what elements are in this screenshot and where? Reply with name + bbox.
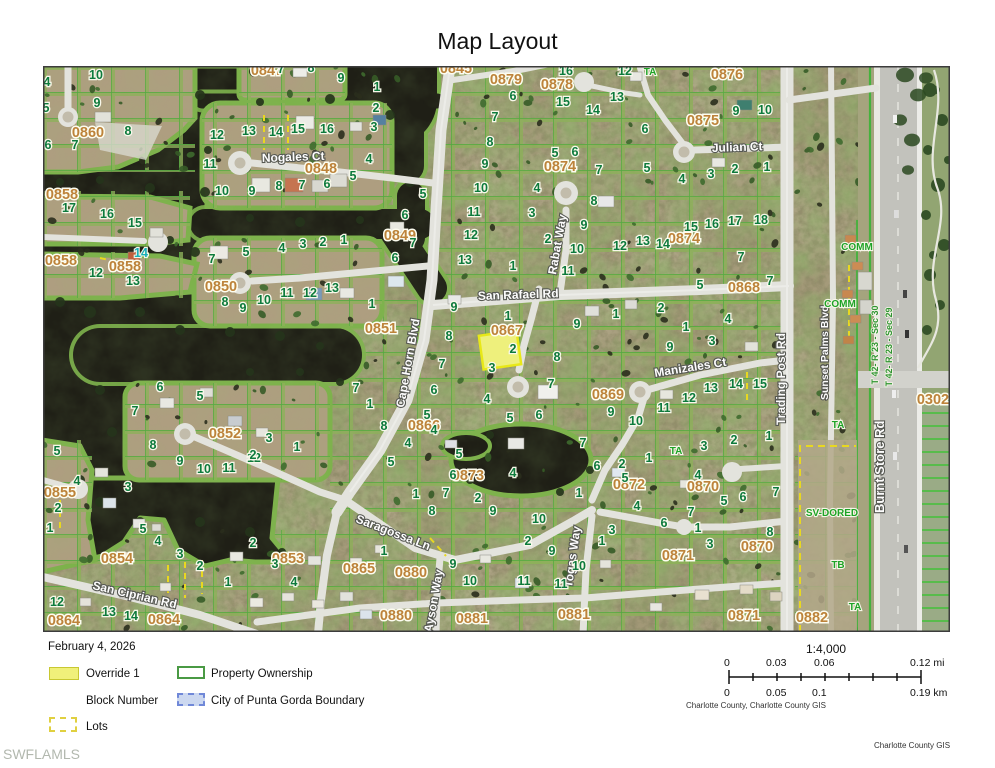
svg-text:8: 8 <box>554 350 561 364</box>
svg-text:1: 1 <box>766 429 773 443</box>
svg-text:8: 8 <box>446 329 453 343</box>
svg-text:14: 14 <box>269 125 283 139</box>
svg-text:0864: 0864 <box>148 612 180 628</box>
svg-text:3: 3 <box>707 537 714 551</box>
svg-text:5: 5 <box>420 187 427 201</box>
svg-text:14: 14 <box>124 609 138 623</box>
svg-text:2: 2 <box>525 534 532 548</box>
svg-text:6: 6 <box>572 145 579 159</box>
svg-text:0875: 0875 <box>687 113 719 129</box>
svg-text:1: 1 <box>764 160 771 174</box>
svg-text:7: 7 <box>299 178 306 192</box>
svg-text:6: 6 <box>642 122 649 136</box>
svg-text:12: 12 <box>50 595 64 609</box>
svg-text:7: 7 <box>767 274 774 288</box>
svg-text:4: 4 <box>679 172 686 186</box>
svg-text:3: 3 <box>529 206 536 220</box>
svg-text:4: 4 <box>534 181 541 195</box>
svg-text:9: 9 <box>482 157 489 171</box>
svg-text:7: 7 <box>132 404 139 418</box>
svg-text:0.05: 0.05 <box>766 687 787 699</box>
svg-text:9: 9 <box>249 184 256 198</box>
svg-text:2: 2 <box>732 162 739 176</box>
svg-text:6: 6 <box>431 383 438 397</box>
svg-text:2: 2 <box>475 491 482 505</box>
svg-text:15: 15 <box>556 95 570 109</box>
svg-text:8: 8 <box>487 135 494 149</box>
svg-text:15: 15 <box>753 377 767 391</box>
svg-text:14: 14 <box>656 237 670 251</box>
svg-text:4: 4 <box>695 468 702 482</box>
svg-text:9: 9 <box>667 340 674 354</box>
svg-text:0848: 0848 <box>305 161 337 177</box>
svg-text:SV-DORED: SV-DORED <box>806 508 858 519</box>
svg-text:4: 4 <box>155 534 162 548</box>
svg-text:0871: 0871 <box>662 548 694 564</box>
svg-text:8: 8 <box>276 179 283 193</box>
svg-text:0845: 0845 <box>440 66 472 77</box>
svg-text:0880: 0880 <box>380 608 412 624</box>
svg-text:0873: 0873 <box>452 468 484 484</box>
svg-text:14: 14 <box>729 377 743 391</box>
svg-text:9: 9 <box>608 405 615 419</box>
svg-text:Sunset Palms Blvd: Sunset Palms Blvd <box>819 305 831 400</box>
svg-text:Julian Ct: Julian Ct <box>712 139 763 155</box>
svg-text:11: 11 <box>554 577 567 591</box>
svg-text:4: 4 <box>405 436 412 450</box>
svg-text:6: 6 <box>402 208 409 222</box>
svg-text:1: 1 <box>646 451 653 465</box>
svg-text:0864: 0864 <box>48 613 80 629</box>
svg-text:16: 16 <box>559 66 573 78</box>
svg-text:13: 13 <box>325 281 339 295</box>
svg-text:12: 12 <box>210 128 224 142</box>
svg-text:10: 10 <box>474 181 488 195</box>
svg-text:15: 15 <box>684 220 698 234</box>
svg-text:10: 10 <box>629 414 643 428</box>
svg-text:0870: 0870 <box>741 539 773 555</box>
svg-text:7: 7 <box>773 485 780 499</box>
svg-text:2: 2 <box>658 301 665 315</box>
svg-text:1: 1 <box>294 440 301 454</box>
svg-text:13: 13 <box>102 605 116 619</box>
svg-text:0858: 0858 <box>45 253 77 269</box>
svg-text:12: 12 <box>682 391 696 405</box>
svg-text:9: 9 <box>94 96 101 110</box>
svg-text:4: 4 <box>279 241 286 255</box>
svg-text:9: 9 <box>451 300 458 314</box>
svg-text:6: 6 <box>45 138 52 152</box>
svg-text:6: 6 <box>392 251 399 265</box>
svg-text:11: 11 <box>467 205 480 219</box>
svg-text:5: 5 <box>388 455 395 469</box>
svg-text:COMM: COMM <box>824 299 856 310</box>
svg-text:3: 3 <box>609 523 616 537</box>
svg-text:TB: TB <box>831 560 844 571</box>
svg-text:5: 5 <box>552 146 559 160</box>
svg-text:18: 18 <box>754 213 768 227</box>
svg-text:7: 7 <box>580 436 587 450</box>
svg-text:1: 1 <box>576 486 583 500</box>
svg-text:16: 16 <box>705 217 719 231</box>
svg-text:4: 4 <box>725 312 732 326</box>
svg-text:0850: 0850 <box>205 279 237 295</box>
svg-text:TA: TA <box>644 67 657 78</box>
svg-text:17: 17 <box>62 201 76 215</box>
svg-text:8: 8 <box>429 504 436 518</box>
svg-text:5: 5 <box>350 169 357 183</box>
svg-text:11: 11 <box>280 286 293 300</box>
svg-text:13: 13 <box>610 90 624 104</box>
svg-text:4: 4 <box>74 474 81 488</box>
svg-text:8: 8 <box>767 525 774 539</box>
svg-text:8: 8 <box>150 438 157 452</box>
svg-text:2: 2 <box>545 232 552 246</box>
svg-text:14: 14 <box>134 246 148 260</box>
svg-text:6: 6 <box>450 468 457 482</box>
svg-text:10: 10 <box>215 184 229 198</box>
svg-text:0871: 0871 <box>728 608 760 624</box>
svg-text:5: 5 <box>622 471 629 485</box>
svg-text:6: 6 <box>510 89 517 103</box>
svg-text:12: 12 <box>464 228 478 242</box>
svg-text:13: 13 <box>126 274 140 288</box>
svg-text:10: 10 <box>532 512 546 526</box>
svg-text:10: 10 <box>572 559 586 573</box>
svg-text:Trading Post Rd: Trading Post Rd <box>774 333 788 425</box>
svg-text:5: 5 <box>54 444 61 458</box>
svg-text:0.12 mi: 0.12 mi <box>910 657 944 669</box>
svg-text:13: 13 <box>704 381 718 395</box>
svg-text:7: 7 <box>492 110 499 124</box>
svg-text:13: 13 <box>636 234 650 248</box>
svg-text:0: 0 <box>724 687 730 699</box>
svg-text:8: 8 <box>125 124 132 138</box>
svg-text:1: 1 <box>367 397 374 411</box>
svg-text:15: 15 <box>128 216 142 230</box>
svg-text:0855: 0855 <box>44 485 76 501</box>
svg-text:1: 1 <box>47 521 54 535</box>
svg-text:7: 7 <box>738 250 745 264</box>
svg-text:3: 3 <box>272 557 279 571</box>
svg-text:5: 5 <box>644 161 651 175</box>
svg-text:2: 2 <box>619 457 626 471</box>
svg-text:3: 3 <box>125 480 132 494</box>
svg-text:10: 10 <box>197 462 211 476</box>
svg-text:3: 3 <box>489 361 496 375</box>
svg-text:10: 10 <box>89 68 103 82</box>
svg-text:2: 2 <box>373 101 380 115</box>
svg-text:0874: 0874 <box>544 159 576 175</box>
svg-text:0851: 0851 <box>365 321 397 337</box>
svg-text:6: 6 <box>661 516 668 530</box>
svg-text:T 42- R 23 - Sec 30: T 42- R 23 - Sec 30 <box>870 305 880 384</box>
svg-text:6: 6 <box>157 380 164 394</box>
svg-text:0881: 0881 <box>456 611 488 627</box>
svg-text:12: 12 <box>303 286 317 300</box>
svg-text:0870: 0870 <box>687 479 719 495</box>
svg-text:7: 7 <box>72 138 79 152</box>
svg-text:4: 4 <box>510 466 517 480</box>
svg-text:17: 17 <box>728 214 742 228</box>
svg-text:0867: 0867 <box>491 323 523 339</box>
svg-text:5: 5 <box>197 389 204 403</box>
svg-text:TA: TA <box>670 446 683 457</box>
svg-text:4: 4 <box>291 575 298 589</box>
svg-text:7: 7 <box>439 357 446 371</box>
svg-text:1: 1 <box>613 307 620 321</box>
svg-text:0852: 0852 <box>209 426 241 442</box>
svg-text:1: 1 <box>225 575 232 589</box>
svg-text:1: 1 <box>369 297 376 311</box>
svg-text:15: 15 <box>291 122 305 136</box>
svg-text:11: 11 <box>517 574 530 588</box>
svg-text:1: 1 <box>341 233 348 247</box>
svg-text:0879: 0879 <box>490 72 522 88</box>
svg-text:11: 11 <box>203 157 216 171</box>
svg-text:10: 10 <box>758 103 772 117</box>
svg-text:11: 11 <box>222 461 235 475</box>
svg-text:13: 13 <box>458 253 472 267</box>
svg-text:0.19 km: 0.19 km <box>910 687 948 699</box>
svg-text:11: 11 <box>657 401 670 415</box>
svg-text:10: 10 <box>463 574 477 588</box>
svg-text:7: 7 <box>688 505 695 519</box>
svg-text:7: 7 <box>209 252 216 266</box>
svg-text:0.1: 0.1 <box>812 687 827 699</box>
svg-text:0858: 0858 <box>109 259 141 275</box>
svg-text:9: 9 <box>338 71 345 85</box>
svg-text:1: 1 <box>599 534 606 548</box>
svg-text:8: 8 <box>222 295 229 309</box>
svg-text:16: 16 <box>100 207 114 221</box>
svg-text:14: 14 <box>586 103 600 117</box>
svg-text:12: 12 <box>613 239 627 253</box>
svg-text:9: 9 <box>490 504 497 518</box>
svg-text:7: 7 <box>410 236 417 250</box>
svg-text:TA: TA <box>849 602 862 613</box>
svg-text:3: 3 <box>701 439 708 453</box>
svg-text:7: 7 <box>548 377 555 391</box>
svg-text:10: 10 <box>570 242 584 256</box>
svg-text:10: 10 <box>257 293 271 307</box>
svg-text:1: 1 <box>510 259 517 273</box>
svg-text:1: 1 <box>505 309 512 323</box>
svg-text:6: 6 <box>536 408 543 422</box>
svg-text:9: 9 <box>581 218 588 232</box>
svg-text:San Rafael Rd: San Rafael Rd <box>478 286 559 303</box>
svg-text:1: 1 <box>374 80 381 94</box>
svg-text:2: 2 <box>250 448 257 462</box>
svg-text:7: 7 <box>596 163 603 177</box>
svg-text:9: 9 <box>177 454 184 468</box>
svg-text:6: 6 <box>324 177 331 191</box>
svg-text:0880: 0880 <box>395 565 427 581</box>
svg-text:9: 9 <box>574 317 581 331</box>
svg-text:T 42- R 23 - Sec 29: T 42- R 23 - Sec 29 <box>884 307 894 386</box>
svg-text:0865: 0865 <box>343 561 375 577</box>
svg-text:8: 8 <box>381 419 388 433</box>
svg-text:3: 3 <box>266 431 273 445</box>
svg-text:4: 4 <box>366 152 373 166</box>
svg-text:0854: 0854 <box>101 551 133 567</box>
svg-text:0.03: 0.03 <box>766 657 787 669</box>
svg-text:5: 5 <box>424 408 431 422</box>
svg-text:3: 3 <box>709 334 716 348</box>
svg-text:9: 9 <box>450 557 457 571</box>
svg-text:11: 11 <box>561 264 574 278</box>
svg-text:13: 13 <box>242 124 256 138</box>
svg-text:5: 5 <box>243 245 250 259</box>
svg-text:4: 4 <box>431 423 438 437</box>
svg-text:1: 1 <box>683 320 690 334</box>
svg-text:7: 7 <box>443 486 450 500</box>
svg-text:9: 9 <box>549 544 556 558</box>
svg-text:2: 2 <box>510 342 517 356</box>
svg-text:9: 9 <box>733 104 740 118</box>
svg-text:3: 3 <box>177 547 184 561</box>
svg-text:5: 5 <box>721 494 728 508</box>
svg-text:0302: 0302 <box>917 392 949 408</box>
svg-text:16: 16 <box>320 122 334 136</box>
svg-text:6: 6 <box>594 459 601 473</box>
svg-text:6: 6 <box>740 490 747 504</box>
svg-text:5: 5 <box>697 278 704 292</box>
svg-text:0869: 0869 <box>592 387 624 403</box>
svg-text:0882: 0882 <box>796 610 828 626</box>
svg-text:5: 5 <box>140 522 147 536</box>
svg-text:7: 7 <box>353 381 360 395</box>
svg-text:4: 4 <box>484 392 491 406</box>
svg-text:1: 1 <box>381 544 388 558</box>
svg-text:2: 2 <box>197 559 204 573</box>
svg-text:TA: TA <box>832 420 845 431</box>
svg-text:2: 2 <box>320 235 327 249</box>
svg-text:0872: 0872 <box>613 477 645 493</box>
svg-text:3: 3 <box>708 167 715 181</box>
svg-text:2: 2 <box>55 501 62 515</box>
svg-text:12: 12 <box>618 66 632 78</box>
svg-text:4: 4 <box>44 75 51 89</box>
svg-text:0: 0 <box>724 657 730 669</box>
svg-text:5: 5 <box>456 447 463 461</box>
svg-text:3: 3 <box>371 120 378 134</box>
svg-text:4: 4 <box>634 499 641 513</box>
svg-text:0881: 0881 <box>558 607 590 623</box>
svg-text:COMM: COMM <box>841 242 873 253</box>
svg-text:3: 3 <box>300 237 307 251</box>
svg-text:12: 12 <box>89 266 103 280</box>
svg-text:0868: 0868 <box>728 280 760 296</box>
svg-text:2: 2 <box>731 433 738 447</box>
svg-text:Burnt Store Rd: Burnt Store Rd <box>872 421 887 514</box>
svg-text:5: 5 <box>507 411 514 425</box>
svg-text:8: 8 <box>591 194 598 208</box>
svg-text:1: 1 <box>695 521 702 535</box>
svg-text:2: 2 <box>250 536 257 550</box>
svg-text:1: 1 <box>413 487 420 501</box>
svg-text:0878: 0878 <box>541 77 573 93</box>
svg-text:0876: 0876 <box>711 67 743 83</box>
svg-text:9: 9 <box>240 301 247 315</box>
svg-text:0.06: 0.06 <box>814 657 835 669</box>
